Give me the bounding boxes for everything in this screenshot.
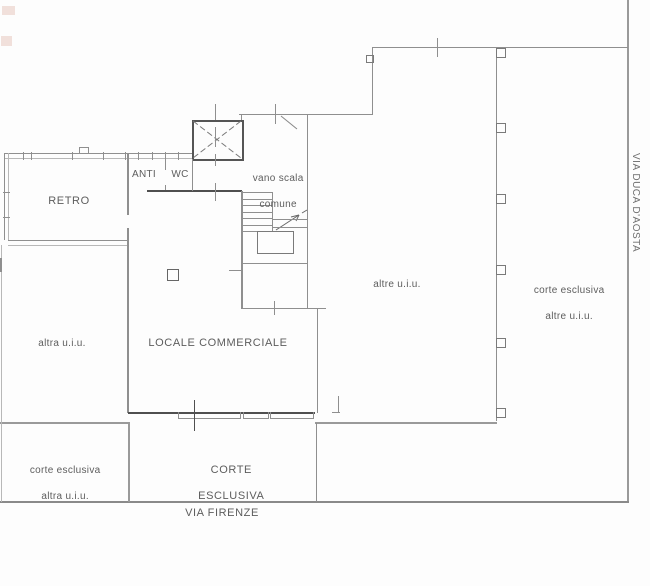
room-label-altra-uiu: altra u.i.u. [12, 337, 112, 350]
street-label-via-duca-daosta: VIA DUCA D'AOSTA [630, 153, 641, 248]
room-label-corte-esclusiva-altre: corte esclusiva altre u.i.u. [513, 271, 613, 336]
room-label-wc: WC [166, 168, 194, 181]
wall-stair-bottom [242, 263, 307, 264]
window-tick [243, 412, 244, 419]
section-line-dash [215, 183, 216, 201]
room-label-anti: ANTI [126, 168, 162, 181]
window-sill [178, 418, 240, 419]
window-tick [313, 412, 314, 419]
window-tick [270, 412, 271, 419]
wall-elevator-connector [241, 114, 242, 120]
room-label-corte-esclusiva-altra: corte esclusiva altra u.i.u. [9, 451, 109, 516]
wall-locale-bottom [128, 412, 315, 414]
window-tick [178, 412, 179, 419]
room-label-vano-scala: vano scala comune [232, 159, 312, 224]
street-label-via-firenze: VIA FIRENZE [162, 507, 282, 520]
stair-tread [242, 225, 272, 226]
wall-locale-east [317, 308, 318, 413]
room-label-altre-uiu: altre u.i.u. [347, 278, 447, 291]
room-label-retro: RETRO [39, 195, 99, 208]
section-line-dash [215, 154, 216, 166]
pillar [167, 269, 179, 281]
section-line-dash [215, 104, 216, 120]
stair-tread [272, 227, 307, 228]
entrance-axis-tick [194, 400, 195, 431]
wall-corner-nib [332, 412, 340, 413]
window-tick [240, 412, 241, 419]
stair-landing-void [257, 231, 294, 254]
tick-vano-scala-bottom [274, 301, 275, 315]
section-line-dash [215, 127, 216, 147]
window-sill [270, 418, 313, 419]
window-tick [268, 412, 269, 419]
wall-corner-nib [338, 396, 339, 413]
room-label-locale-commerciale: LOCALE COMMERCIALE [118, 337, 318, 350]
floor-plan: RETRO ANTI WC vano scala comune LOCALE C… [0, 0, 650, 586]
wall-understair-nib [229, 270, 241, 271]
window-sill [243, 418, 268, 419]
wall-vano-scala-bottom [241, 308, 326, 309]
